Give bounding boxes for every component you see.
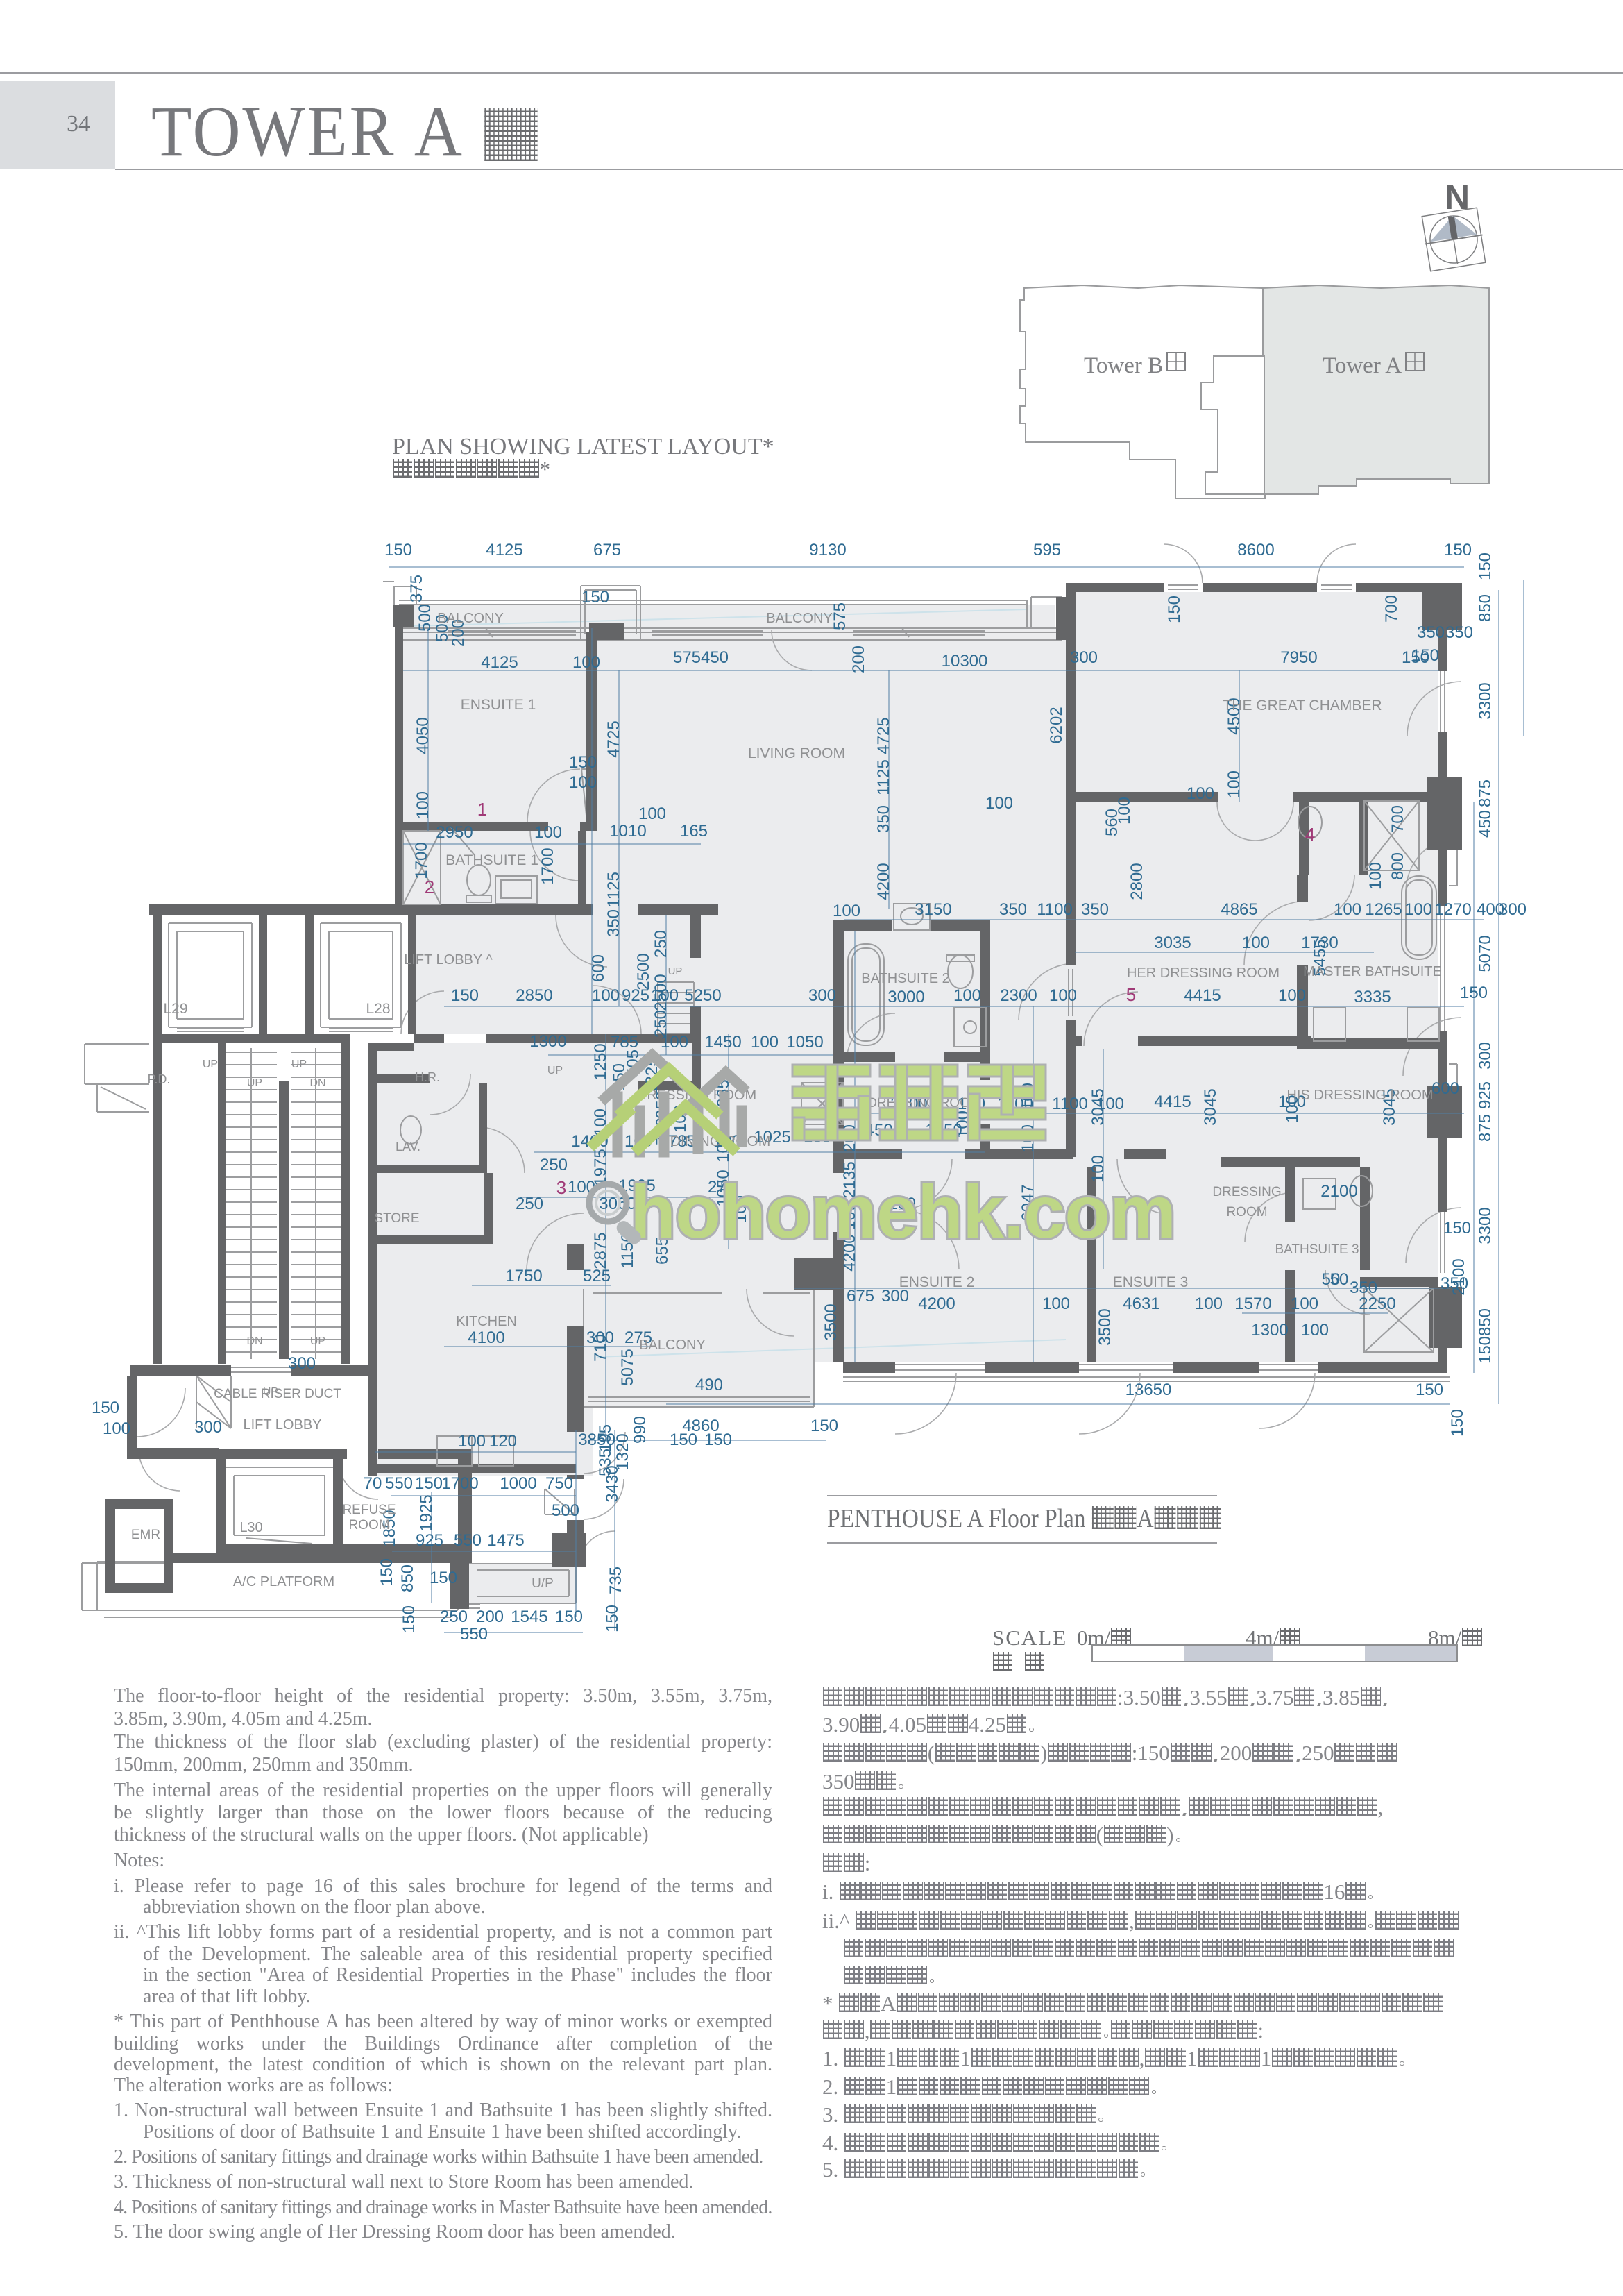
svg-text:100: 100 bbox=[458, 1432, 486, 1451]
svg-text:3500: 3500 bbox=[1096, 1308, 1114, 1345]
svg-text:4865: 4865 bbox=[1221, 900, 1257, 919]
svg-text:1125: 1125 bbox=[874, 759, 893, 795]
svg-text:H.R.: H.R. bbox=[415, 1070, 440, 1084]
svg-text:4631: 4631 bbox=[1123, 1294, 1159, 1313]
svg-text:U/P: U/P bbox=[532, 1576, 554, 1591]
svg-text:7950: 7950 bbox=[1280, 648, 1317, 667]
svg-text:1700: 1700 bbox=[412, 842, 431, 879]
svg-text:DRESSING: DRESSING bbox=[1212, 1185, 1281, 1199]
svg-text:150: 150 bbox=[430, 1569, 457, 1587]
svg-text:2500: 2500 bbox=[652, 974, 670, 1011]
svg-text:1000: 1000 bbox=[500, 1474, 536, 1493]
svg-text:575: 575 bbox=[831, 602, 849, 630]
svg-text:100: 100 bbox=[1042, 1294, 1070, 1313]
svg-text:4: 4 bbox=[1305, 824, 1315, 845]
svg-text:THE GREAT CHAMBER: THE GREAT CHAMBER bbox=[1223, 698, 1382, 714]
svg-text:3: 3 bbox=[556, 1177, 566, 1198]
svg-text:875: 875 bbox=[1476, 1114, 1495, 1142]
svg-text:BALCONY: BALCONY bbox=[639, 1337, 706, 1353]
svg-text:UP: UP bbox=[668, 965, 683, 977]
svg-text:2950: 2950 bbox=[436, 823, 473, 842]
svg-text:350: 350 bbox=[874, 805, 893, 833]
svg-text:5075: 5075 bbox=[618, 1349, 637, 1385]
svg-text:150: 150 bbox=[1460, 984, 1488, 1002]
svg-text:3430: 3430 bbox=[603, 1465, 622, 1502]
svg-text:UP: UP bbox=[291, 1058, 307, 1070]
svg-text:100: 100 bbox=[638, 804, 666, 823]
svg-text:BATHSUITE 2: BATHSUITE 2 bbox=[861, 971, 949, 986]
svg-text:150: 150 bbox=[1444, 541, 1472, 559]
svg-text:710: 710 bbox=[591, 1334, 610, 1362]
svg-text:3300: 3300 bbox=[1476, 1207, 1495, 1244]
svg-text:UP: UP bbox=[310, 1335, 325, 1347]
svg-text:700: 700 bbox=[1388, 805, 1407, 833]
svg-text:BALCONY: BALCONY bbox=[766, 611, 833, 626]
svg-text:595: 595 bbox=[1033, 541, 1061, 559]
svg-text:100: 100 bbox=[751, 1033, 779, 1052]
svg-text:L30: L30 bbox=[239, 1520, 262, 1535]
svg-text:150: 150 bbox=[810, 1417, 838, 1435]
svg-text:150: 150 bbox=[1476, 1336, 1495, 1364]
svg-text:4415: 4415 bbox=[1184, 986, 1221, 1005]
svg-text:250: 250 bbox=[516, 1195, 543, 1213]
svg-text:3150: 3150 bbox=[915, 900, 951, 919]
svg-text:785: 785 bbox=[611, 1033, 638, 1052]
svg-text:925: 925 bbox=[416, 1531, 443, 1550]
svg-text:2500: 2500 bbox=[634, 953, 653, 990]
svg-text:BALCONY: BALCONY bbox=[437, 611, 504, 626]
svg-text:1475: 1475 bbox=[487, 1531, 524, 1550]
svg-text:300: 300 bbox=[808, 986, 836, 1005]
svg-text:375: 375 bbox=[407, 575, 426, 602]
svg-text:100: 100 bbox=[592, 986, 620, 1005]
svg-text:3335: 3335 bbox=[1354, 988, 1391, 1006]
svg-text:800: 800 bbox=[1388, 852, 1407, 880]
svg-text:350: 350 bbox=[604, 909, 623, 937]
svg-text:3000: 3000 bbox=[887, 988, 924, 1006]
svg-text:300: 300 bbox=[1476, 1042, 1495, 1070]
svg-text:1010: 1010 bbox=[609, 822, 646, 841]
svg-text:1: 1 bbox=[477, 799, 487, 820]
svg-text:150: 150 bbox=[569, 753, 597, 772]
svg-text:L29: L29 bbox=[163, 1001, 187, 1017]
svg-text:ENSUITE 2: ENSUITE 2 bbox=[899, 1274, 975, 1290]
svg-text:550: 550 bbox=[385, 1474, 413, 1493]
svg-text:2: 2 bbox=[425, 877, 434, 897]
svg-text:UP: UP bbox=[247, 1077, 262, 1089]
svg-text:500: 500 bbox=[416, 604, 434, 632]
svg-text:850: 850 bbox=[1476, 1308, 1495, 1336]
svg-text:100: 100 bbox=[1187, 784, 1214, 803]
svg-text:350: 350 bbox=[1081, 900, 1109, 919]
svg-text:ENSUITE 3: ENSUITE 3 bbox=[1113, 1274, 1189, 1290]
svg-text:195: 195 bbox=[596, 1424, 615, 1452]
svg-text:250: 250 bbox=[652, 930, 670, 958]
svg-text:STORE: STORE bbox=[374, 1211, 419, 1226]
svg-text:100: 100 bbox=[1225, 770, 1243, 798]
svg-text:200: 200 bbox=[476, 1607, 504, 1626]
svg-text:ROOM: ROOM bbox=[1226, 1205, 1267, 1219]
svg-text:4050: 4050 bbox=[414, 717, 432, 754]
svg-text:UP: UP bbox=[203, 1058, 218, 1070]
svg-text:1050: 1050 bbox=[786, 1033, 823, 1052]
svg-text:675: 675 bbox=[593, 541, 621, 559]
svg-text:HIS DRESSING ROOM: HIS DRESSING ROOM bbox=[1286, 1088, 1433, 1103]
svg-text:120: 120 bbox=[489, 1432, 517, 1451]
svg-text:70: 70 bbox=[364, 1474, 382, 1493]
svg-text:150: 150 bbox=[377, 1558, 396, 1586]
svg-text:100: 100 bbox=[1404, 900, 1432, 919]
svg-text:2850: 2850 bbox=[516, 986, 552, 1005]
svg-text:150: 150 bbox=[670, 1430, 697, 1449]
svg-text:50: 50 bbox=[1330, 1270, 1349, 1289]
svg-text:600: 600 bbox=[1431, 1079, 1459, 1098]
svg-text:150: 150 bbox=[400, 1605, 418, 1633]
svg-text:DN: DN bbox=[246, 1335, 262, 1347]
svg-text:1545: 1545 bbox=[511, 1607, 547, 1626]
svg-text:L28: L28 bbox=[366, 1001, 390, 1017]
svg-text:350: 350 bbox=[1417, 623, 1445, 642]
svg-text:700: 700 bbox=[1382, 595, 1401, 623]
svg-text:100: 100 bbox=[1049, 986, 1077, 1005]
svg-text:500: 500 bbox=[552, 1501, 579, 1520]
svg-text:150: 150 bbox=[451, 986, 479, 1005]
svg-text:150: 150 bbox=[384, 541, 412, 559]
svg-text:350: 350 bbox=[1445, 623, 1473, 642]
svg-text:300: 300 bbox=[288, 1354, 316, 1373]
svg-text:UP: UP bbox=[547, 1065, 563, 1077]
svg-text:MASTER BATHSUITE: MASTER BATHSUITE bbox=[1303, 964, 1442, 979]
svg-text:1570: 1570 bbox=[1234, 1294, 1271, 1313]
svg-text:3045: 3045 bbox=[1201, 1088, 1220, 1125]
svg-text:600: 600 bbox=[589, 954, 608, 982]
svg-text:9130: 9130 bbox=[809, 541, 846, 559]
svg-text:4725: 4725 bbox=[604, 720, 623, 757]
svg-text:1100: 1100 bbox=[1052, 1095, 1088, 1113]
svg-text:850: 850 bbox=[1476, 594, 1495, 622]
svg-text:1300: 1300 bbox=[1251, 1321, 1288, 1340]
svg-text:575: 575 bbox=[673, 648, 701, 667]
svg-text:4415: 4415 bbox=[1154, 1092, 1191, 1111]
svg-text:4125: 4125 bbox=[481, 653, 518, 672]
svg-text:2100: 2100 bbox=[1450, 1258, 1468, 1295]
svg-text:ROOM: ROOM bbox=[348, 1518, 389, 1533]
svg-text:1975: 1975 bbox=[591, 1149, 610, 1185]
svg-text:3300: 3300 bbox=[1476, 682, 1495, 719]
svg-text:KITCHEN: KITCHEN bbox=[456, 1314, 517, 1329]
svg-text:LIVING ROOM: LIVING ROOM bbox=[748, 745, 845, 761]
svg-text:A/C PLATFORM: A/C PLATFORM bbox=[233, 1574, 334, 1589]
svg-text:675: 675 bbox=[847, 1287, 874, 1306]
svg-text:200: 200 bbox=[849, 645, 868, 673]
svg-text:BATHSUITE 3: BATHSUITE 3 bbox=[1275, 1242, 1359, 1257]
svg-text:1925: 1925 bbox=[417, 1494, 436, 1531]
svg-text:100: 100 bbox=[833, 902, 860, 920]
svg-text:1320: 1320 bbox=[613, 1433, 632, 1470]
svg-text:1270: 1270 bbox=[1434, 900, 1471, 919]
svg-text:8600: 8600 bbox=[1237, 541, 1274, 559]
svg-text:4200: 4200 bbox=[874, 863, 893, 900]
svg-text:100: 100 bbox=[103, 1419, 130, 1438]
svg-text:1250: 1250 bbox=[591, 1043, 610, 1080]
svg-text:4725: 4725 bbox=[874, 717, 893, 754]
svg-text:150: 150 bbox=[603, 1605, 622, 1632]
svg-text:100: 100 bbox=[569, 773, 597, 792]
svg-text:250: 250 bbox=[540, 1156, 568, 1174]
svg-text:3500: 3500 bbox=[822, 1303, 840, 1340]
svg-text:2100: 2100 bbox=[1320, 1182, 1357, 1201]
svg-text:990: 990 bbox=[631, 1416, 649, 1444]
svg-text:925: 925 bbox=[1476, 1081, 1495, 1109]
svg-text:3035: 3035 bbox=[1154, 934, 1191, 952]
svg-text:LIFT LOBBY ^: LIFT LOBBY ^ bbox=[404, 952, 493, 968]
svg-text:3045: 3045 bbox=[1089, 1088, 1107, 1125]
svg-text:hohomehk.com: hohomehk.com bbox=[630, 1170, 1175, 1253]
svg-text:2250: 2250 bbox=[1359, 1294, 1395, 1313]
svg-text:300: 300 bbox=[1499, 900, 1527, 919]
svg-text:Tower A: Tower A bbox=[1323, 353, 1402, 378]
svg-text:1265: 1265 bbox=[1365, 900, 1402, 919]
svg-text:6202: 6202 bbox=[1047, 707, 1066, 743]
svg-text:1125: 1125 bbox=[604, 872, 623, 908]
svg-text:5: 5 bbox=[1126, 984, 1136, 1005]
svg-text:1750: 1750 bbox=[505, 1267, 542, 1285]
svg-text:2300: 2300 bbox=[1000, 986, 1037, 1005]
svg-text:165: 165 bbox=[680, 822, 708, 841]
svg-text:100: 100 bbox=[1278, 986, 1306, 1005]
svg-text:100: 100 bbox=[1334, 900, 1361, 919]
svg-text:2875: 2875 bbox=[591, 1232, 610, 1269]
svg-text:13650: 13650 bbox=[1125, 1381, 1172, 1399]
svg-text:100: 100 bbox=[414, 791, 432, 819]
svg-text:2800: 2800 bbox=[1128, 863, 1146, 900]
svg-text:875: 875 bbox=[1476, 779, 1495, 807]
svg-text:100: 100 bbox=[1291, 1294, 1318, 1313]
svg-text:100: 100 bbox=[1366, 862, 1385, 890]
svg-text:100: 100 bbox=[1115, 797, 1134, 825]
svg-text:150: 150 bbox=[581, 588, 609, 607]
svg-text:P.D.: P.D. bbox=[148, 1072, 171, 1086]
svg-text:1450: 1450 bbox=[704, 1033, 741, 1052]
svg-text:ENSUITE 1: ENSUITE 1 bbox=[461, 697, 536, 713]
svg-text:4100: 4100 bbox=[468, 1328, 504, 1347]
svg-text:150: 150 bbox=[92, 1399, 119, 1417]
svg-text:150: 150 bbox=[415, 1474, 443, 1493]
svg-text:REFUSE: REFUSE bbox=[342, 1503, 396, 1517]
svg-text:100: 100 bbox=[1301, 1321, 1329, 1340]
svg-text:350: 350 bbox=[999, 900, 1027, 919]
svg-text:150: 150 bbox=[1165, 596, 1184, 623]
svg-text:450: 450 bbox=[701, 648, 729, 667]
svg-text:735: 735 bbox=[606, 1567, 625, 1594]
svg-text:150: 150 bbox=[704, 1430, 732, 1449]
svg-text:850: 850 bbox=[398, 1564, 417, 1592]
svg-text:4200: 4200 bbox=[918, 1294, 955, 1313]
svg-text:550: 550 bbox=[454, 1531, 482, 1550]
svg-text:150: 150 bbox=[1411, 646, 1439, 665]
svg-text:Tower B: Tower B bbox=[1084, 353, 1163, 378]
svg-text:DN: DN bbox=[309, 1077, 325, 1089]
svg-text:100: 100 bbox=[572, 653, 600, 672]
svg-text:LIFT LOBBY: LIFT LOBBY bbox=[243, 1417, 321, 1433]
svg-text:100: 100 bbox=[1242, 934, 1270, 952]
svg-text:1100: 1100 bbox=[1037, 900, 1073, 919]
svg-text:5070: 5070 bbox=[1476, 935, 1495, 972]
svg-text:BATHSUITE 1: BATHSUITE 1 bbox=[445, 852, 538, 868]
svg-text:100: 100 bbox=[1195, 1294, 1223, 1313]
svg-text:550: 550 bbox=[460, 1625, 488, 1644]
svg-text:1700: 1700 bbox=[538, 847, 557, 884]
svg-text:750: 750 bbox=[545, 1474, 573, 1493]
svg-text:1700: 1700 bbox=[441, 1474, 478, 1493]
svg-text:150: 150 bbox=[1476, 552, 1495, 580]
svg-text:100: 100 bbox=[534, 823, 562, 842]
svg-text:300: 300 bbox=[1070, 648, 1098, 667]
svg-text:150: 150 bbox=[1443, 1219, 1471, 1238]
svg-text:150: 150 bbox=[555, 1607, 583, 1626]
svg-text:150: 150 bbox=[1448, 1409, 1467, 1437]
svg-text:10300: 10300 bbox=[942, 652, 988, 670]
svg-text:100: 100 bbox=[953, 986, 981, 1005]
svg-text:490: 490 bbox=[695, 1376, 723, 1394]
svg-text:150: 150 bbox=[1416, 1381, 1443, 1399]
svg-text:4125: 4125 bbox=[486, 541, 522, 559]
svg-text:LAV.: LAV. bbox=[396, 1140, 420, 1154]
svg-text:1300: 1300 bbox=[529, 1032, 566, 1051]
svg-text:450: 450 bbox=[1476, 810, 1495, 838]
svg-text:HER DRESSING ROOM: HER DRESSING ROOM bbox=[1127, 965, 1280, 981]
svg-text:UP: UP bbox=[263, 1386, 278, 1398]
svg-text:300: 300 bbox=[194, 1418, 222, 1437]
svg-text:350: 350 bbox=[1350, 1278, 1377, 1297]
svg-text:EMR: EMR bbox=[131, 1528, 160, 1542]
svg-text:250: 250 bbox=[652, 1010, 670, 1038]
svg-text:250: 250 bbox=[440, 1607, 468, 1626]
svg-text:5250: 5250 bbox=[684, 986, 721, 1005]
svg-text:100: 100 bbox=[985, 794, 1013, 813]
